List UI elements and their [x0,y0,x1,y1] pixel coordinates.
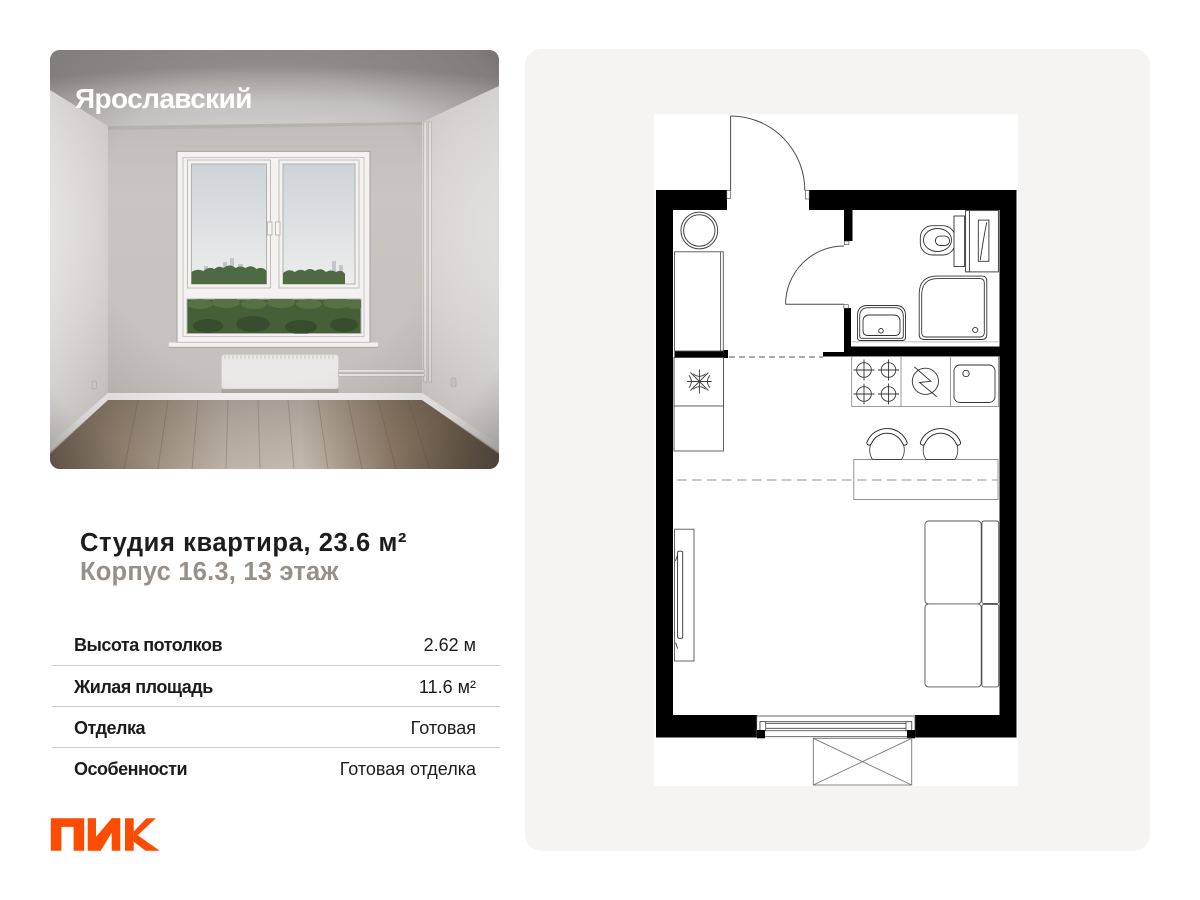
svg-text:Ярославский: Ярославский [75,83,252,114]
